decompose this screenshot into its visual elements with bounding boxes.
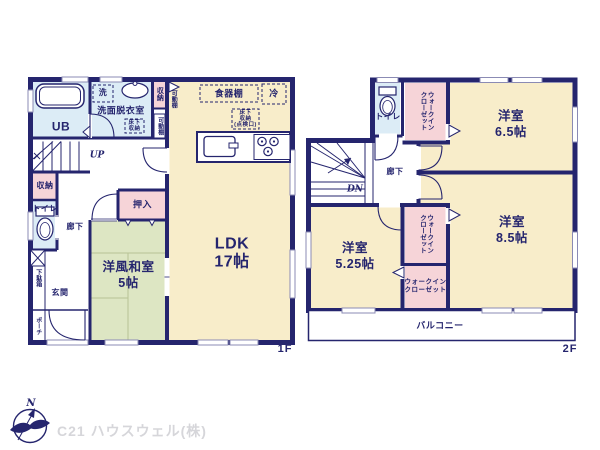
label-shoe-cabinet: 下駄箱: [34, 269, 41, 287]
label-balcony: バルコニー: [416, 320, 463, 331]
room-label-yoshitsu-85: 洋室 8.5帖: [496, 214, 528, 247]
label-storage-mid: 収納: [37, 181, 54, 191]
floor2-label: 2F: [563, 343, 578, 357]
room-label-wic-top: ウォークイン クローゼット: [419, 92, 433, 131]
room-label-washitsu: 洋風和室 5帖: [102, 259, 154, 292]
room-label-laundry: 洗: [99, 88, 108, 98]
floor2-plan: トイレ ウォークイン クローゼット 洋室 6.5帖 廊下 DN 洋室 5.25帖…: [303, 70, 590, 360]
room-label-washroom: 洗面脱衣室: [97, 105, 145, 116]
label-storage-top: 収納: [156, 87, 164, 101]
room-label-yoshitsu-65: 洋室 6.5帖: [495, 108, 527, 141]
room-label-wic-mid: ウォークイン クローゼット: [418, 215, 432, 254]
label-fridge: 冷: [269, 88, 279, 99]
label-hallway-1f: 廊下: [67, 222, 84, 232]
kitchen-counter-icon: [197, 132, 290, 162]
label-hallway-2f: 廊下: [387, 167, 404, 177]
room-label-yoshitsu-525: 洋室 5.25帖: [335, 240, 374, 273]
label-stairs-down: DN: [347, 184, 363, 195]
floor1-plan: UB 洗 洗面脱衣室 床下 収納 収納 可動棚 可動棚 食器棚 冷 床下 収納 …: [25, 70, 300, 360]
label-stairs-up: UP: [90, 150, 105, 161]
stairs-down-icon: [311, 143, 373, 203]
floor1-drawing: [25, 70, 300, 360]
floor1-label: 1F: [278, 343, 293, 357]
company-watermark: C21 ハウスウェル(株): [57, 421, 207, 441]
footer: N C21 ハウスウェル(株): [0, 385, 600, 450]
label-movable-shelf-1: 可動棚: [170, 90, 177, 108]
stairs-up-icon: [33, 142, 79, 171]
label-movable-shelf-2: 可動棚: [156, 117, 163, 135]
room-label-ldk: LDK 17帖: [214, 236, 249, 273]
label-underfloor-storage: 床下 収納: [128, 120, 140, 132]
label-oshiire: 押入: [133, 199, 152, 210]
bathtub-icon: [36, 84, 84, 108]
room-label-wic-low: ウォークイン クローゼット: [405, 279, 447, 296]
room-label-toilet-2f: トイレ: [375, 112, 401, 122]
floor2-drawing: [303, 70, 590, 360]
label-entrance: 玄関: [52, 288, 69, 298]
label-cupboard: 食器棚: [215, 88, 244, 99]
room-label-ub: UB: [52, 120, 70, 135]
label-porch: ポーチ: [34, 317, 41, 335]
compass-north-label: N: [26, 398, 35, 411]
room-label-toilet-1f: トイレ: [32, 204, 58, 214]
label-underfloor-inspection: 床下 収納 (点検口): [234, 110, 257, 128]
